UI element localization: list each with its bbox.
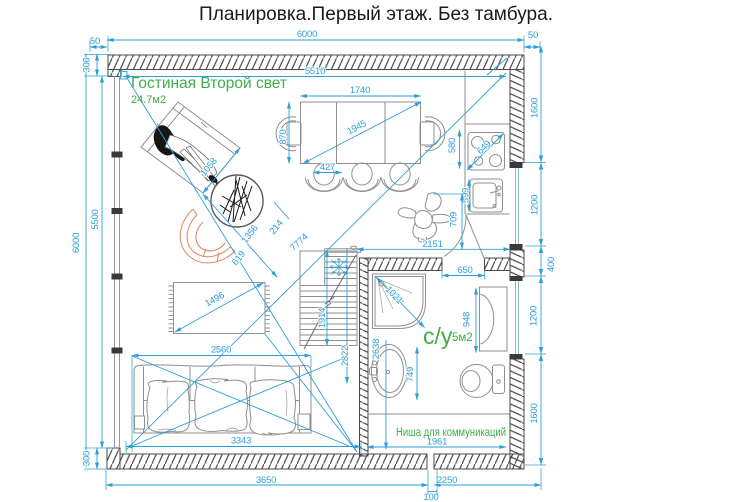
- svg-text:5500: 5500: [90, 209, 101, 229]
- svg-text:948: 948: [462, 312, 473, 327]
- svg-text:100: 100: [423, 492, 438, 502]
- svg-text:2822: 2822: [340, 346, 351, 366]
- svg-text:870: 870: [278, 129, 289, 144]
- svg-text:1600: 1600: [530, 98, 541, 118]
- svg-text:1200: 1200: [530, 195, 541, 215]
- svg-text:1740: 1740: [350, 85, 370, 96]
- svg-text:Планировка.Первый этаж. Без та: Планировка.Первый этаж. Без тамбура.: [199, 3, 553, 25]
- svg-text:1200: 1200: [529, 306, 540, 326]
- svg-text:2638: 2638: [371, 339, 382, 359]
- svg-text:Ниша для коммуникаций: Ниша для коммуникаций: [396, 427, 506, 439]
- svg-text:1914: 1914: [317, 308, 328, 328]
- svg-text:6000: 6000: [297, 29, 317, 40]
- svg-text:5м2: 5м2: [452, 332, 473, 344]
- svg-text:24.7м2: 24.7м2: [131, 94, 166, 106]
- svg-text:3343: 3343: [231, 436, 251, 447]
- svg-text:650: 650: [457, 265, 472, 276]
- svg-text:2560: 2560: [211, 345, 231, 356]
- svg-text:2151: 2151: [422, 239, 442, 250]
- svg-text:580: 580: [447, 138, 458, 153]
- svg-text:749: 749: [405, 367, 416, 382]
- svg-text:400: 400: [546, 257, 557, 272]
- svg-text:300: 300: [82, 451, 93, 466]
- svg-text:1600: 1600: [529, 403, 540, 423]
- svg-text:300: 300: [82, 57, 93, 72]
- svg-text:427: 427: [320, 162, 335, 173]
- svg-text:с/у: с/у: [423, 323, 453, 349]
- svg-text:709: 709: [449, 212, 460, 227]
- svg-text:Гостиная Второй свет: Гостиная Второй свет: [131, 75, 287, 92]
- svg-text:3650: 3650: [256, 475, 276, 486]
- svg-text:6000: 6000: [71, 233, 82, 253]
- svg-text:2250: 2250: [437, 475, 457, 486]
- svg-text:5510: 5510: [305, 66, 325, 77]
- svg-text:50: 50: [528, 30, 538, 41]
- svg-text:50: 50: [90, 36, 100, 47]
